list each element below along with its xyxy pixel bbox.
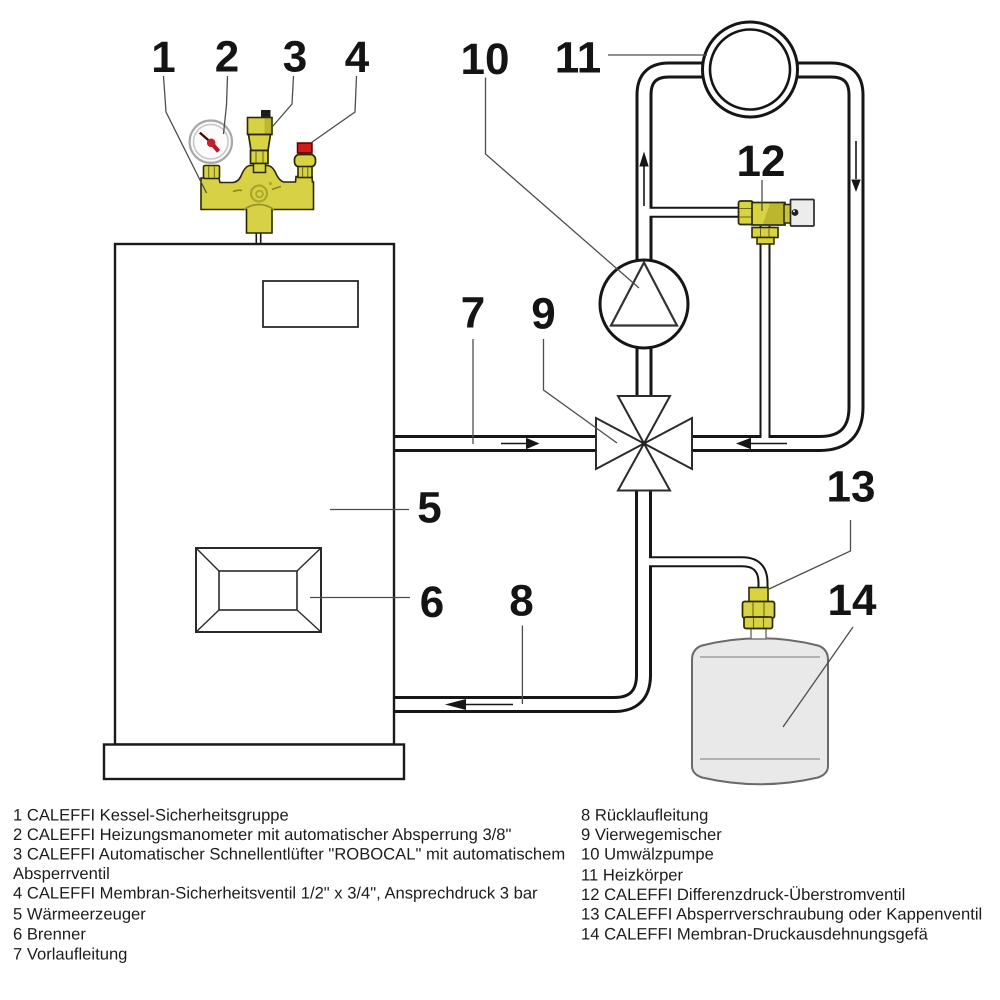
svg-text:1: 1 bbox=[151, 33, 175, 82]
svg-text:10: 10 bbox=[461, 35, 510, 84]
svg-text:3: 3 bbox=[283, 33, 307, 82]
svg-text:12: 12 bbox=[737, 137, 786, 186]
svg-text:6 Brenner: 6 Brenner bbox=[13, 925, 86, 944]
svg-text:1 CALEFFI Kessel-Sicherheitsgr: 1 CALEFFI Kessel-Sicherheitsgruppe bbox=[13, 805, 289, 824]
svg-text:7: 7 bbox=[461, 289, 485, 338]
svg-text:13 CALEFFI Absperrverschraubun: 13 CALEFFI Absperrverschraubung oder Kap… bbox=[581, 905, 982, 924]
svg-text:9: 9 bbox=[531, 290, 555, 339]
svg-text:8: 8 bbox=[509, 577, 533, 626]
svg-text:8 Rücklaufleitung: 8 Rücklaufleitung bbox=[581, 805, 708, 824]
svg-text:5 Wärmeerzeuger: 5 Wärmeerzeuger bbox=[13, 904, 146, 923]
svg-text:4: 4 bbox=[345, 33, 370, 82]
svg-text:11 Heizkörper: 11 Heizkörper bbox=[581, 866, 684, 885]
svg-text:2: 2 bbox=[215, 33, 239, 82]
svg-text:14: 14 bbox=[828, 576, 877, 625]
svg-text:2 CALEFFI Heizungsmanometer mi: 2 CALEFFI Heizungsmanometer mit automati… bbox=[13, 825, 512, 844]
svg-text:6: 6 bbox=[420, 578, 444, 627]
svg-text:7 Vorlaufleitung: 7 Vorlaufleitung bbox=[13, 945, 127, 964]
svg-text:12 CALEFFI Differenzdruck-Über: 12 CALEFFI Differenzdruck-Überstromventi… bbox=[581, 885, 905, 904]
svg-text:11: 11 bbox=[555, 34, 602, 83]
svg-text:5: 5 bbox=[417, 484, 441, 533]
svg-text:4 CALEFFI Membran-Sicherheitsv: 4 CALEFFI Membran-Sicherheitsventil 1/2"… bbox=[13, 883, 538, 902]
svg-text:13: 13 bbox=[827, 463, 876, 512]
svg-text:14 CALEFFI Membran-Druckausdeh: 14 CALEFFI Membran-Druckausdehnungsgefä bbox=[581, 925, 929, 944]
svg-text:9 Vierwegemischer: 9 Vierwegemischer bbox=[581, 825, 722, 844]
svg-text:Absperrventil: Absperrventil bbox=[13, 864, 110, 883]
svg-text:10 Umwälzpumpe: 10 Umwälzpumpe bbox=[581, 845, 714, 864]
svg-text:3 CALEFFI Automatischer Schnel: 3 CALEFFI Automatischer Schnellentlüfter… bbox=[13, 844, 565, 863]
